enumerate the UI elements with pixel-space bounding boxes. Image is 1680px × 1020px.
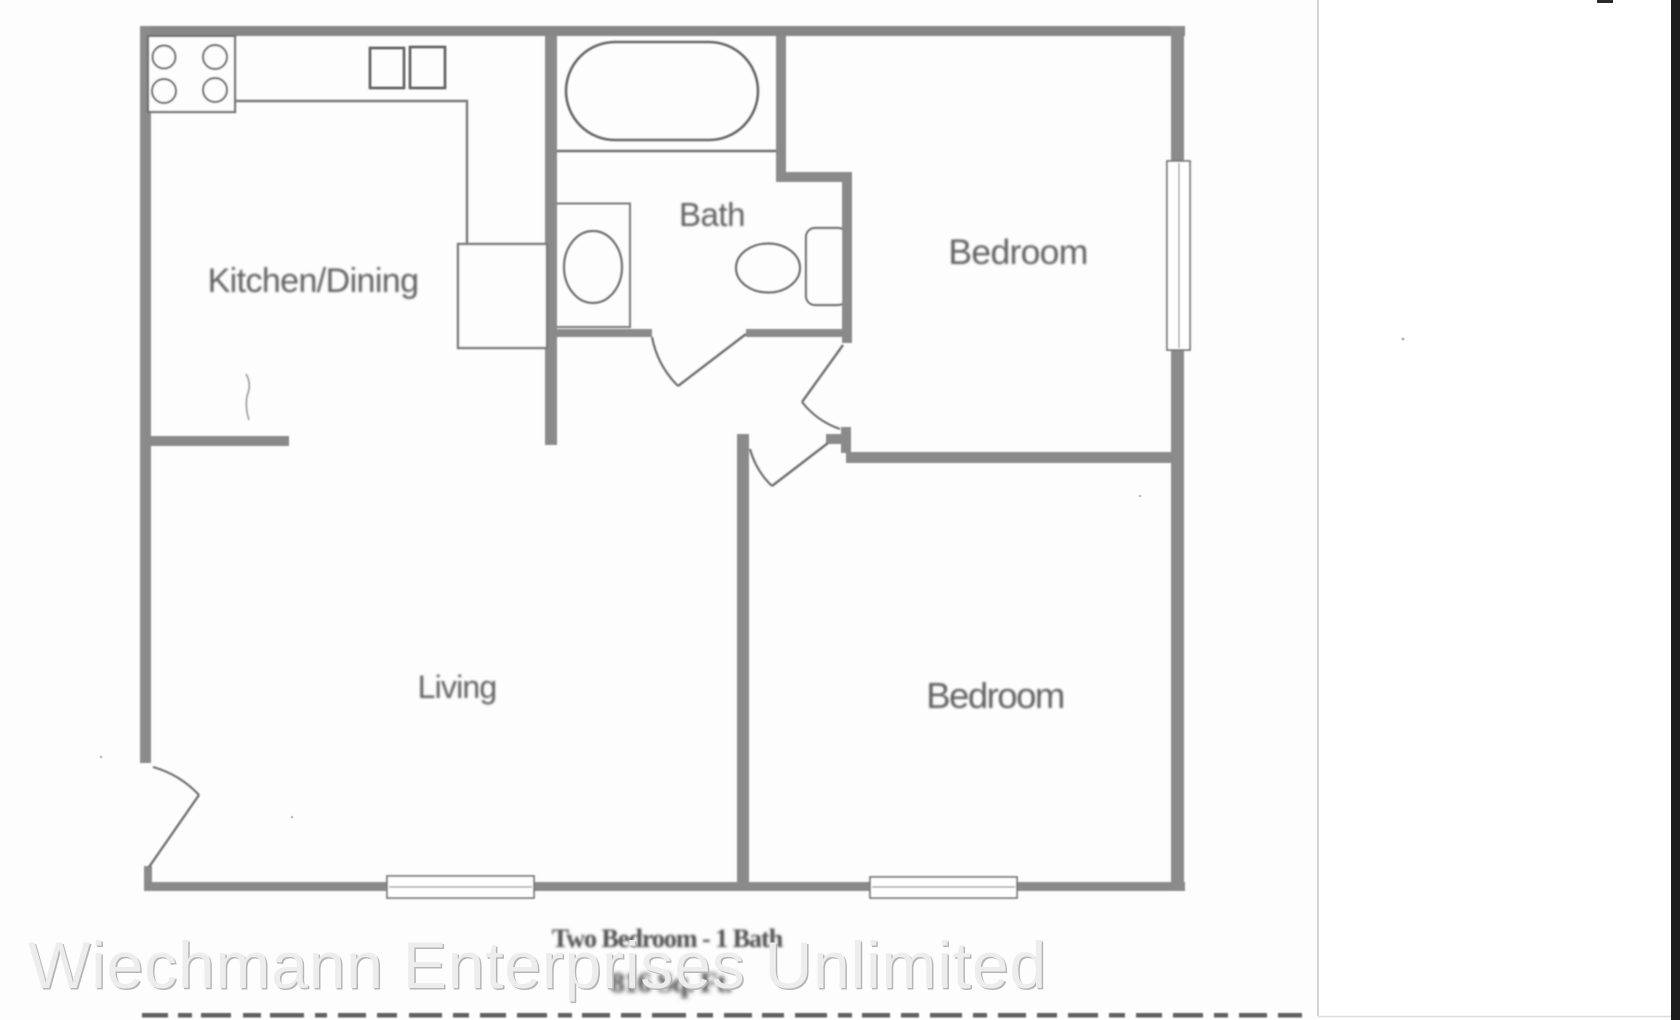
svg-text:Wiechmann Enterprises Unlimite: Wiechmann Enterprises Unlimited [28,928,1047,1002]
svg-text:Kitchen/Dining: Kitchen/Dining [208,262,419,300]
svg-text:Living: Living [418,669,497,705]
svg-text:Bedroom: Bedroom [948,232,1087,272]
svg-text:Bedroom: Bedroom [926,675,1064,716]
svg-text:Bath: Bath [679,196,745,233]
